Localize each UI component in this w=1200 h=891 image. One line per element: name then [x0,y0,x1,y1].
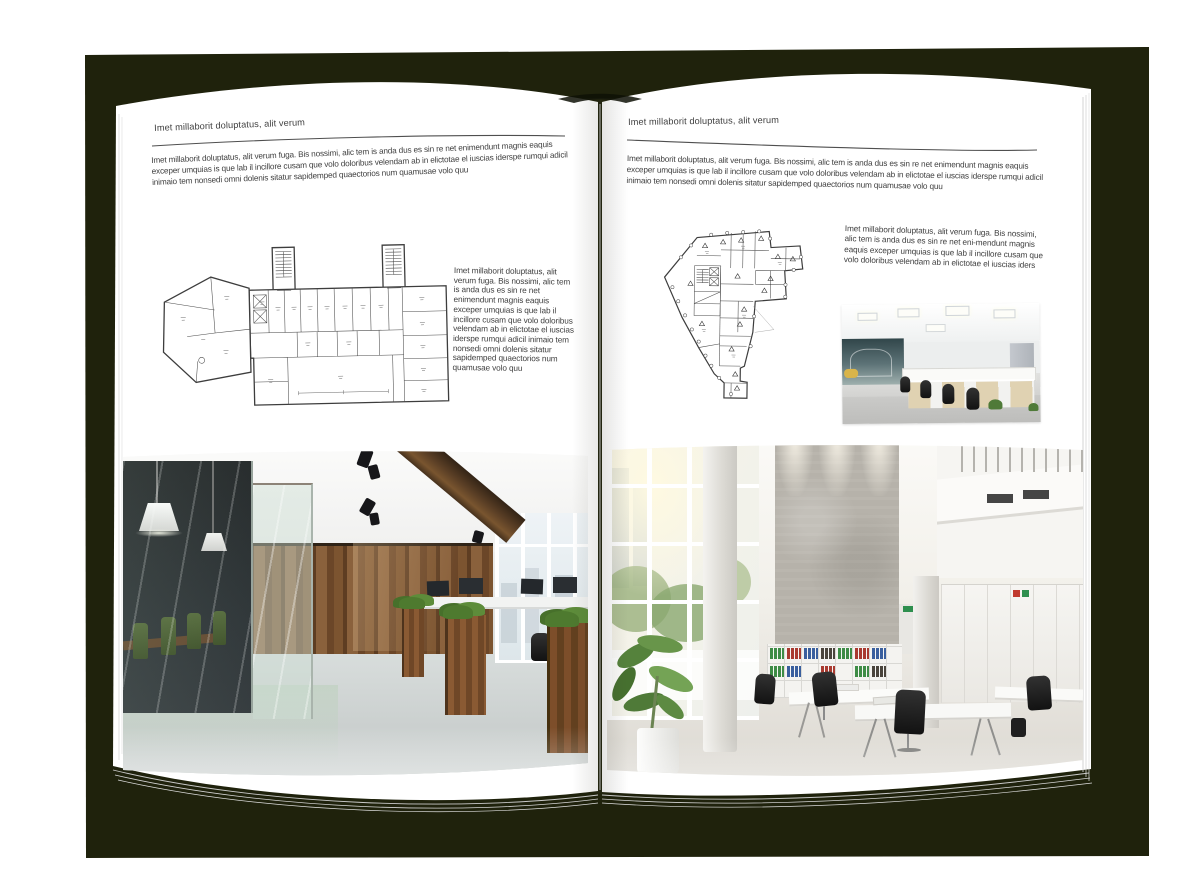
black-chair [966,388,979,410]
planter-grass [443,605,473,619]
mezzanine [937,438,1083,578]
first-aid-sign-green [1022,590,1029,597]
small-plant [1028,403,1038,411]
downlight-glow [819,438,855,496]
small-plant [988,399,1002,409]
ceiling-light [897,308,919,317]
binders-green [838,648,852,659]
black-chair [811,671,838,707]
cabinet-seams [941,584,1083,703]
ceiling-light [945,306,969,316]
glass-reflection [253,485,311,719]
monitor [459,578,483,594]
planter-grass [399,597,425,609]
vent-grille [987,494,1013,503]
floor-plan-left-drawing [155,234,451,424]
binders-blue [787,666,801,677]
glass-reflection [123,461,251,713]
binders-dark [872,666,886,677]
right-page-header: Imet millaborit doluptatus, alit verum [628,115,779,127]
binders-red [855,648,869,659]
downlight-glow [777,438,813,496]
brochure-mockup: Imet millaborit doluptatus, alit verum I… [0,0,1200,891]
floor-plan-right [651,225,812,415]
photo-office-atrium [607,438,1083,783]
chair-stem [823,706,825,720]
white-column [703,438,737,752]
binders-green [770,648,784,659]
papers [835,684,859,691]
waste-bin [1011,718,1026,737]
glass-partition [842,338,904,385]
downlight-glow [861,438,897,496]
ceiling-light [993,309,1015,318]
photo-office-small [841,303,1040,424]
binders-blue [872,648,886,659]
floor-plan-right-drawing [651,225,812,415]
monitor [553,577,577,593]
floor-plan-left [155,234,451,424]
right-header-rule [625,135,1039,153]
binders-red [787,648,801,659]
monitor [427,581,450,597]
ceiling-light [926,324,946,332]
black-chair [1026,675,1052,711]
black-chair [920,380,931,398]
photo-office-dark [123,447,588,779]
yellow-ottoman [844,369,858,378]
monitor [521,579,544,595]
vent-grille [1023,490,1049,499]
glass-panel [253,483,313,719]
glass-meeting-room [123,461,253,713]
left-page-side-text: Imet millaborit doluptatus, alit verum f… [453,266,578,374]
binders-blue [804,648,818,659]
right-page-side-text: Imet millaborit doluptatus, alit verum f… [844,224,1045,272]
binders-green [855,666,869,677]
cabinet-wall [941,584,1083,702]
black-chair [894,689,926,735]
track-spotlight [369,512,380,525]
concrete-wall [775,438,899,644]
ceiling-light [857,313,877,321]
desk-leg [798,702,810,737]
black-chair [754,673,776,704]
wood-planter [402,605,424,677]
wood-planter [445,615,486,715]
black-chair [942,384,954,404]
planter-grass [545,611,579,627]
first-aid-sign-red [1013,590,1020,597]
black-chair [900,376,910,392]
binders-dark [821,648,835,659]
desk-row [419,597,588,609]
